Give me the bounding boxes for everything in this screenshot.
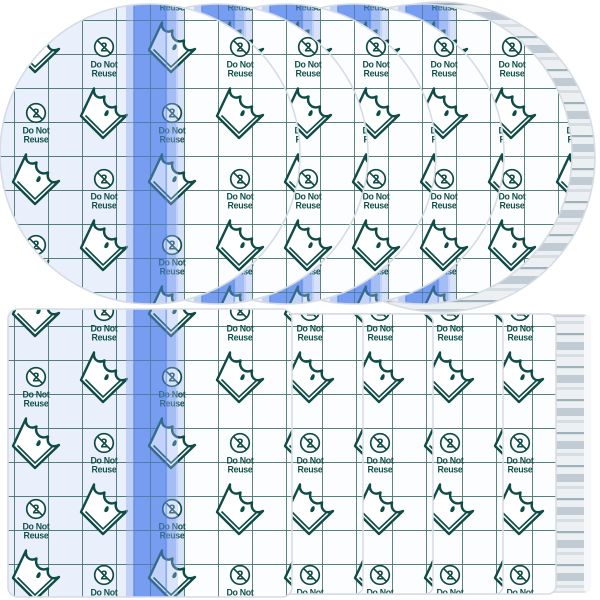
dressings-illustration: 2 Do Not Reuse <box>0 0 600 600</box>
product-photo: 2 Do Not Reuse <box>0 0 600 600</box>
